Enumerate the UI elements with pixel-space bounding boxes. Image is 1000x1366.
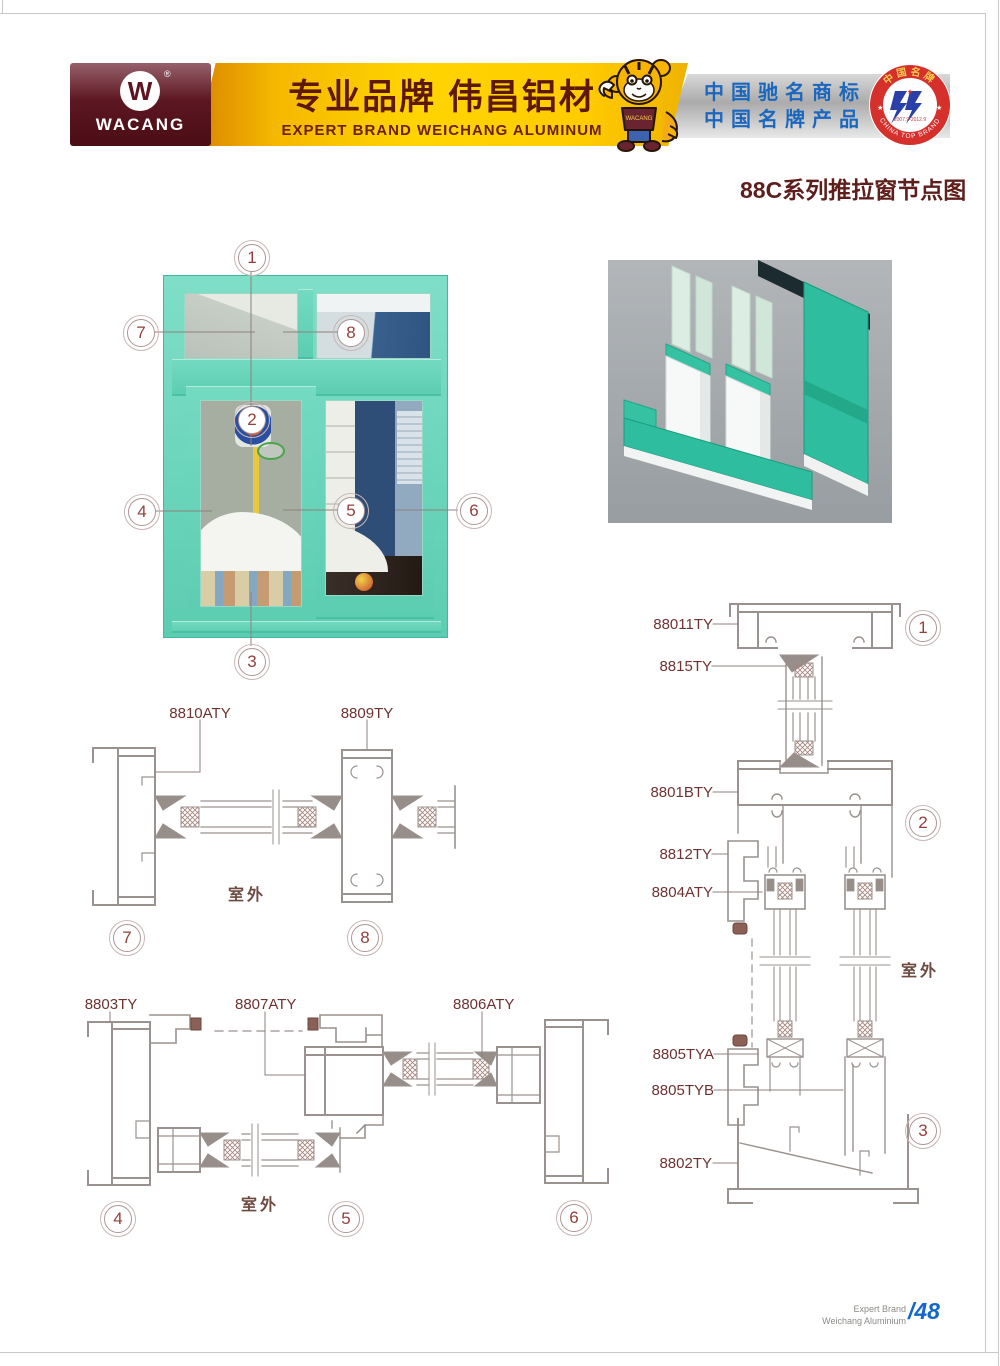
outdoor-label-mid: 室外 bbox=[228, 881, 266, 905]
callout-4-num: 4 bbox=[137, 502, 146, 521]
detail-callout-1: 1 bbox=[909, 614, 937, 642]
window-blinds bbox=[397, 411, 422, 485]
profile-3d-render bbox=[608, 260, 892, 523]
bottom-rule bbox=[0, 1352, 999, 1353]
detail-callout-4-num: 4 bbox=[113, 1209, 122, 1228]
footer-page-number: /48 bbox=[908, 1298, 940, 1325]
seal-star-right: ★ bbox=[936, 104, 942, 112]
mascot-shirt-text: WACANG bbox=[626, 116, 653, 122]
part-label-8801BTY: 8801BTY bbox=[640, 784, 713, 801]
outdoor-label-right: 室外 bbox=[901, 957, 939, 981]
part-label-8809TY: 8809TY bbox=[340, 705, 394, 722]
footer-brand: Expert Brand Weichang Aluminium bbox=[806, 1304, 906, 1327]
seal-center-star: ★ bbox=[907, 88, 913, 96]
callout-8-num: 8 bbox=[346, 323, 355, 342]
callout-1-num: 1 bbox=[247, 248, 256, 267]
detail-callout-5-num: 5 bbox=[341, 1209, 350, 1228]
top-rule bbox=[0, 13, 985, 14]
detail-callout-4: 4 bbox=[104, 1205, 132, 1233]
wacang-logo: W ® WACANG bbox=[70, 63, 211, 146]
callout-2-num: 2 bbox=[247, 410, 256, 429]
catalog-page: 专业品牌 伟昌铝材 EXPERT BRAND WEICHANG ALUMINUM… bbox=[0, 0, 1000, 1366]
detail-callout-7-num: 7 bbox=[122, 928, 131, 947]
right-sash bbox=[314, 384, 434, 619]
detail-callout-3-num: 3 bbox=[918, 1121, 927, 1140]
wacang-logo-mark-icon: W bbox=[120, 71, 160, 111]
china-top-brand-seal-icon: 中国名牌 CHINA TOP BRAND ★ ★ ★ 2007.9-2012.9 bbox=[868, 60, 952, 148]
transom-glass-left bbox=[184, 293, 298, 359]
part-label-8804ATY: 8804ATY bbox=[640, 884, 713, 901]
part-label-8812TY: 8812TY bbox=[640, 846, 712, 863]
callout-4: 4 bbox=[128, 498, 156, 526]
detail-callout-7: 7 bbox=[113, 924, 141, 952]
bed-white bbox=[200, 512, 302, 574]
part-label-8805TYB: 8805TYB bbox=[640, 1082, 714, 1099]
part-label-8810ATY: 8810ATY bbox=[168, 705, 232, 722]
detail-callout-5: 5 bbox=[332, 1205, 360, 1233]
detail-callout-2: 2 bbox=[909, 809, 937, 837]
bed-edge bbox=[325, 521, 388, 571]
seal-dates: 2007.9-2012.9 bbox=[894, 117, 926, 123]
detail-callout-2-num: 2 bbox=[918, 813, 927, 832]
window-photo bbox=[163, 275, 448, 638]
callout-6-num: 6 bbox=[469, 501, 478, 520]
callout-3-num: 3 bbox=[247, 652, 256, 671]
footer-brand-line2: Weichang Aluminium bbox=[806, 1316, 906, 1328]
callout-2: 2 bbox=[238, 406, 266, 434]
callout-3: 3 bbox=[238, 648, 266, 676]
callout-5-num: 5 bbox=[346, 501, 355, 520]
callout-1: 1 bbox=[238, 244, 266, 272]
right-rule-inner bbox=[985, 13, 986, 1352]
part-label-88011TY: 88011TY bbox=[640, 616, 713, 633]
left-corner-tick bbox=[2, 0, 3, 13]
detail-callout-6-num: 6 bbox=[569, 1208, 578, 1227]
callout-6: 6 bbox=[460, 497, 488, 525]
detail-callout-8: 8 bbox=[351, 924, 379, 952]
basketball-hoop bbox=[257, 442, 285, 460]
callout-7: 7 bbox=[127, 319, 155, 347]
tiger-mascot-icon: WACANG bbox=[592, 48, 692, 152]
part-label-8803TY: 8803TY bbox=[84, 996, 138, 1013]
section-drawing-transom bbox=[85, 700, 465, 960]
part-label-8807ATY: 8807ATY bbox=[235, 996, 293, 1013]
detail-callout-3: 3 bbox=[909, 1117, 937, 1145]
outdoor-label-bottom: 室外 bbox=[241, 1191, 279, 1215]
right-rule-outer bbox=[998, 0, 999, 1366]
window-sill bbox=[172, 621, 441, 633]
callout-8: 8 bbox=[337, 319, 365, 347]
callout-7-num: 7 bbox=[136, 323, 145, 342]
part-label-8815TY: 8815TY bbox=[640, 658, 712, 675]
part-label-8802TY: 8802TY bbox=[640, 1155, 712, 1172]
detail-callout-8-num: 8 bbox=[360, 928, 369, 947]
wacang-logo-text: WACANG bbox=[70, 115, 211, 135]
callout-5: 5 bbox=[337, 497, 365, 525]
rug bbox=[201, 571, 301, 606]
toy-ball bbox=[355, 573, 373, 591]
detail-callout-6: 6 bbox=[560, 1204, 588, 1232]
transom-mullion bbox=[298, 289, 313, 359]
page-title: 88C系列推拉窗节点图 bbox=[740, 171, 955, 205]
footer-brand-line1: Expert Brand bbox=[806, 1304, 906, 1316]
registered-mark: ® bbox=[164, 69, 171, 79]
part-label-8805TYA: 8805TYA bbox=[640, 1046, 714, 1063]
detail-callout-1-num: 1 bbox=[918, 618, 927, 637]
part-label-8806ATY: 8806ATY bbox=[453, 996, 511, 1013]
seal-star-left: ★ bbox=[877, 104, 883, 112]
